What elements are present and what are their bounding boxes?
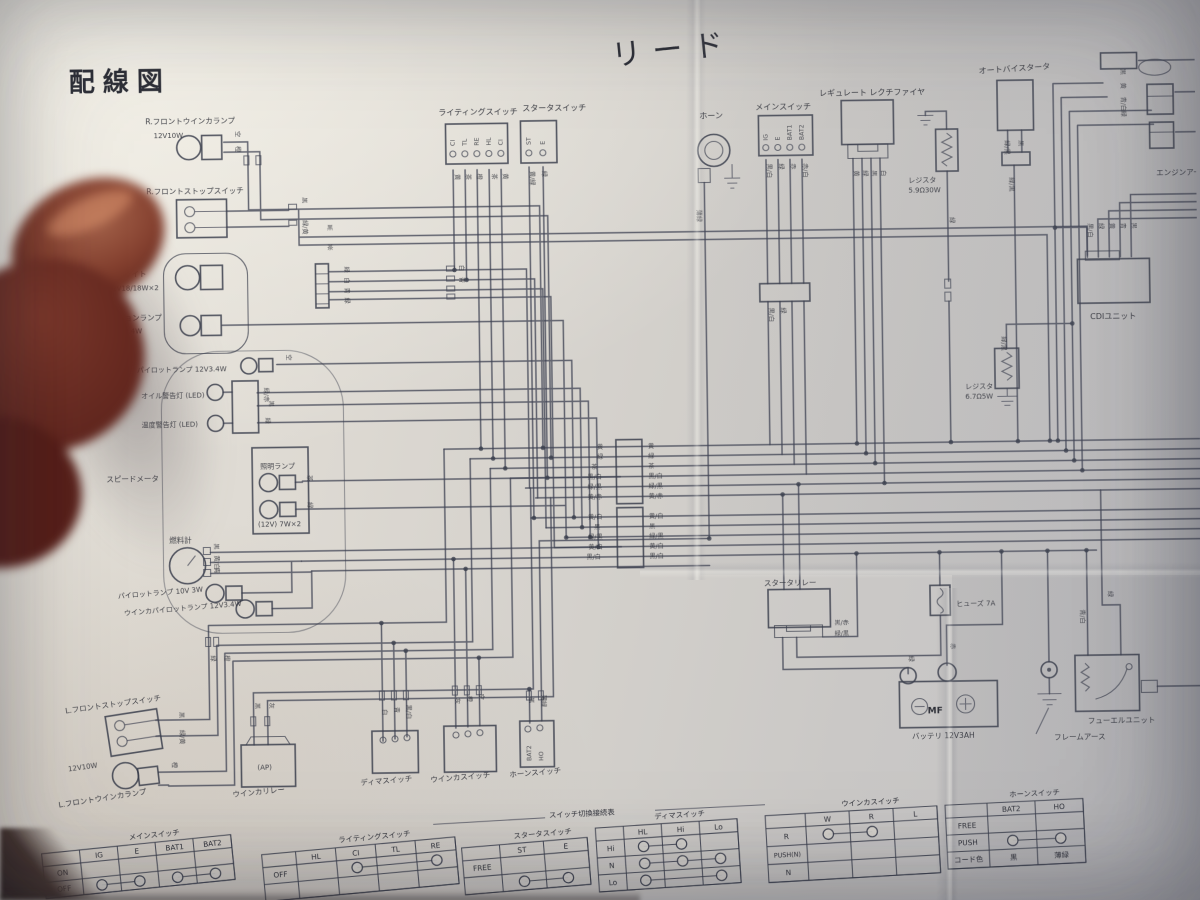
label-battery: バッテリ 12V3AH bbox=[912, 731, 975, 741]
label-winker-relay-ap: (AP) bbox=[257, 764, 272, 772]
svg-text:黒: 黒 bbox=[649, 523, 655, 530]
label-starter-switch: スタータスイッチ bbox=[522, 103, 586, 113]
svg-text:灰: 灰 bbox=[453, 698, 461, 704]
svg-text:CI: CI bbox=[352, 848, 360, 858]
label-fuse: ヒューズ 7A bbox=[956, 598, 995, 608]
label-starter-relay: スタータリレー bbox=[764, 578, 817, 588]
model-title: リード bbox=[610, 26, 736, 73]
svg-text:黄: 黄 bbox=[1108, 223, 1116, 229]
svg-text:青: 青 bbox=[213, 567, 221, 573]
r-front-winker-lamp bbox=[177, 135, 222, 160]
svg-text:緑: 緑 bbox=[779, 307, 787, 313]
svg-text:茶: 茶 bbox=[327, 244, 333, 252]
svg-text:PUSH: PUSH bbox=[958, 838, 978, 848]
battery-component bbox=[899, 662, 998, 727]
svg-text:R: R bbox=[869, 812, 875, 821]
svg-text:黒: 黒 bbox=[327, 225, 333, 232]
wires-right-top bbox=[765, 60, 1200, 485]
svg-text:黄/白: 黄/白 bbox=[649, 542, 664, 550]
svg-text:青/白: 青/白 bbox=[1119, 97, 1127, 112]
svg-text:茶: 茶 bbox=[464, 174, 472, 180]
svg-text:ホーンスイッチ: ホーンスイッチ bbox=[1009, 788, 1060, 799]
svg-text:緑/黒: 緑/黒 bbox=[1007, 177, 1015, 192]
tables-header-text: スイッチ切換接続表 bbox=[549, 808, 616, 820]
svg-text:緑: 緑 bbox=[306, 502, 314, 508]
svg-text:黄: 黄 bbox=[597, 443, 603, 451]
svg-text:N: N bbox=[785, 868, 791, 877]
label-r-front-winker: R.フロントウインカランプ bbox=[145, 116, 235, 126]
svg-text:青: 青 bbox=[1119, 223, 1127, 229]
svg-text:赤/白: 赤/白 bbox=[801, 163, 809, 178]
label-l-front-winker: L.フロントウインカランプ bbox=[58, 787, 148, 810]
svg-text:茶: 茶 bbox=[305, 475, 313, 481]
svg-text:IG: IG bbox=[95, 850, 104, 860]
svg-text:BAT2: BAT2 bbox=[203, 838, 222, 849]
fuse-component bbox=[930, 585, 950, 615]
svg-text:空: 空 bbox=[234, 131, 242, 137]
svg-text:緑: 緑 bbox=[777, 163, 785, 169]
svg-text:E: E bbox=[540, 141, 547, 145]
svg-text:HL: HL bbox=[311, 852, 322, 862]
svg-text:黄: 黄 bbox=[648, 442, 654, 450]
svg-text:緑: 緑 bbox=[861, 170, 869, 176]
svg-text:黄/赤: 黄/赤 bbox=[588, 493, 603, 501]
svg-text:HL: HL bbox=[638, 827, 649, 837]
svg-text:赤: 赤 bbox=[789, 163, 796, 169]
svg-text:BAT2: BAT2 bbox=[798, 124, 805, 140]
svg-text:緑: 緑 bbox=[948, 217, 956, 223]
tables-header: スイッチ切換接続表 bbox=[433, 805, 765, 825]
svg-text:RE: RE bbox=[474, 137, 481, 145]
svg-text:薄緑: 薄緑 bbox=[695, 210, 703, 222]
svg-text:黄: 黄 bbox=[501, 173, 509, 179]
svg-text:ST: ST bbox=[517, 845, 527, 855]
svg-text:緑/黒: 緑/黒 bbox=[588, 533, 603, 541]
label-fuel-unit: フューエルユニット bbox=[1088, 715, 1156, 725]
svg-text:緑/黒: 緑/黒 bbox=[999, 336, 1007, 351]
svg-text:W: W bbox=[824, 814, 832, 823]
label-r-front-winker-spec: 12V10W bbox=[154, 132, 184, 140]
svg-text:茶: 茶 bbox=[591, 463, 597, 471]
svg-text:OFF: OFF bbox=[273, 869, 288, 879]
svg-text:OFF: OFF bbox=[57, 884, 72, 894]
pilot-lamp-bulb bbox=[241, 358, 257, 374]
svg-text:黒: 黒 bbox=[1010, 853, 1018, 862]
svg-text:コード色: コード色 bbox=[954, 854, 984, 864]
svg-text:Hi: Hi bbox=[607, 844, 615, 853]
svg-text:黄/白: 黄/白 bbox=[588, 513, 603, 521]
svg-text:E: E bbox=[775, 136, 782, 140]
svg-text:黒: 黒 bbox=[1130, 222, 1137, 228]
svg-text:灰: 灰 bbox=[267, 703, 275, 709]
svg-text:E: E bbox=[563, 842, 569, 851]
svg-text:HL: HL bbox=[486, 137, 493, 146]
label-battery-mf: MF bbox=[928, 706, 943, 716]
svg-text:緑: 緑 bbox=[1106, 591, 1114, 597]
label-main-switch: メインスイッチ bbox=[755, 102, 811, 112]
horn-switch-box bbox=[520, 721, 555, 767]
svg-text:薄緑: 薄緑 bbox=[539, 695, 547, 707]
cdi-unit-box bbox=[1077, 250, 1150, 303]
svg-text:薄緑: 薄緑 bbox=[1054, 850, 1070, 860]
svg-text:メインスイッチ: メインスイッチ bbox=[128, 828, 180, 842]
svg-text:茶: 茶 bbox=[490, 173, 498, 179]
svg-text:青/白: 青/白 bbox=[1078, 609, 1086, 624]
svg-text:白: 白 bbox=[343, 277, 351, 283]
pilot-lamp-a bbox=[206, 584, 224, 602]
svg-text:緑: 緑 bbox=[209, 655, 217, 661]
svg-text:青: 青 bbox=[458, 277, 466, 283]
svg-text:緑: 緑 bbox=[648, 452, 654, 460]
winker-switch-box bbox=[444, 725, 497, 772]
regulator-rectifier-box bbox=[841, 100, 894, 159]
svg-text:黒: 黒 bbox=[267, 401, 274, 407]
winker-relay-box bbox=[241, 736, 296, 787]
resistor-2 bbox=[995, 348, 1020, 405]
svg-text:黄/赤: 黄/赤 bbox=[649, 492, 664, 500]
svg-text:橙: 橙 bbox=[465, 696, 473, 703]
svg-text:緑/黒: 緑/黒 bbox=[1003, 140, 1011, 155]
svg-text:BAT2: BAT2 bbox=[1002, 804, 1021, 814]
svg-text:黒: 黒 bbox=[527, 697, 534, 703]
finger bbox=[0, 176, 209, 581]
svg-text:黒/白: 黒/白 bbox=[405, 705, 413, 720]
wires-bottom-left bbox=[148, 183, 712, 787]
horn-component bbox=[698, 134, 741, 189]
svg-text:緑: 緑 bbox=[1097, 223, 1105, 229]
svg-text:緑: 緑 bbox=[343, 297, 351, 303]
fuel-unit-box bbox=[1075, 654, 1158, 711]
svg-text:橙: 橙 bbox=[234, 146, 242, 153]
svg-text:空: 空 bbox=[477, 694, 485, 700]
svg-text:白: 白 bbox=[879, 170, 887, 176]
svg-text:青: 青 bbox=[343, 287, 351, 293]
label-lamp-a: パイロットランプ 10V 3W bbox=[118, 586, 204, 601]
svg-text:黒: 黒 bbox=[253, 703, 260, 709]
label-frame-earth: フレームアース bbox=[1054, 732, 1106, 742]
svg-text:緑: 緑 bbox=[264, 418, 272, 424]
svg-text:ON: ON bbox=[57, 868, 69, 878]
svg-text:橙: 橙 bbox=[223, 655, 231, 662]
svg-text:黒/赤: 黒/赤 bbox=[834, 620, 849, 627]
svg-text:緑/黒: 緑/黒 bbox=[587, 483, 602, 491]
svg-text:茶: 茶 bbox=[648, 462, 654, 470]
wires-top-switch-drops bbox=[453, 167, 548, 519]
svg-text:E: E bbox=[134, 846, 140, 855]
svg-text:RE: RE bbox=[430, 841, 441, 851]
label-regulator: レギュレート レクチファイヤ bbox=[819, 87, 925, 97]
l-front-stop-switch bbox=[105, 709, 163, 756]
svg-text:緑/黒: 緑/黒 bbox=[835, 630, 850, 638]
svg-text:橙: 橙 bbox=[475, 174, 483, 181]
svg-text:R: R bbox=[784, 832, 790, 841]
svg-text:CI: CI bbox=[498, 139, 505, 145]
starter-relay-box bbox=[768, 589, 831, 638]
svg-text:白: 白 bbox=[457, 265, 465, 271]
svg-text:黒/白: 黒/白 bbox=[649, 552, 664, 560]
label-cdi: CDIユニット bbox=[1090, 311, 1136, 321]
label-auto-bystarter: オートバイスタータ bbox=[978, 62, 1050, 76]
svg-text:N: N bbox=[609, 861, 615, 870]
svg-text:HO: HO bbox=[1053, 802, 1065, 812]
l-front-winker-lamp bbox=[112, 762, 159, 789]
svg-text:赤: 赤 bbox=[949, 643, 956, 649]
label-resistor2-spec: 6.7Ω5W bbox=[965, 393, 993, 401]
svg-text:黒: 黒 bbox=[870, 170, 877, 176]
resistor-1 bbox=[917, 115, 958, 172]
svg-text:PUSH(N): PUSH(N) bbox=[774, 850, 802, 860]
label-horn-switch: ホーンスイッチ bbox=[509, 766, 562, 779]
svg-text:黄/白: 黄/白 bbox=[649, 512, 664, 520]
svg-text:FREE: FREE bbox=[473, 863, 493, 874]
wires-main-bus bbox=[300, 432, 1200, 573]
svg-text:BAT1: BAT1 bbox=[786, 124, 793, 140]
label-illumination: 照明ランプ bbox=[260, 462, 295, 470]
svg-text:黒: 黒 bbox=[1119, 69, 1126, 75]
svg-text:黒/白: 黒/白 bbox=[1086, 223, 1094, 238]
svg-text:緑/黄: 緑/黄 bbox=[178, 730, 186, 745]
wire-color-labels: 空橙黒緑/黄緑白青緑白青黒茶空緑/赤黒緑茶緑黒黄/白青黄茶橙茶黄黄/緑緑薄緑黒/… bbox=[161, 68, 1144, 769]
main-switch-connector bbox=[760, 283, 810, 302]
svg-text:黒: 黒 bbox=[178, 712, 185, 718]
svg-text:橙: 橙 bbox=[170, 762, 178, 769]
svg-text:Lo: Lo bbox=[608, 878, 618, 888]
label-l-front-winker-spec: 12V10W bbox=[68, 761, 98, 773]
svg-text:青: 青 bbox=[393, 707, 401, 713]
svg-text:緑: 緑 bbox=[342, 266, 350, 272]
svg-text:黄: 黄 bbox=[852, 170, 860, 176]
svg-text:黒: 黒 bbox=[1017, 140, 1024, 146]
top-right-components bbox=[1101, 52, 1174, 149]
svg-text:緑/黒: 緑/黒 bbox=[649, 532, 664, 540]
label-winker-switch: ウインカスイッチ bbox=[430, 770, 491, 784]
svg-text:黒: 黒 bbox=[300, 197, 307, 203]
svg-text:緑: 緑 bbox=[597, 453, 603, 461]
label-resistor1-spec: 5.9Ω30W bbox=[908, 186, 940, 194]
label-resistor1: レジスタ bbox=[908, 175, 936, 184]
svg-text:IG: IG bbox=[763, 134, 770, 141]
svg-text:TL: TL bbox=[390, 844, 401, 854]
svg-text:黒/白: 黒/白 bbox=[767, 308, 775, 323]
svg-text:黄/白: 黄/白 bbox=[588, 543, 603, 551]
label-engine-earth: エンジンアース bbox=[1156, 167, 1200, 177]
svg-text:緑: 緑 bbox=[540, 171, 548, 177]
label-dimmer-switch: ディマスイッチ bbox=[360, 773, 413, 787]
label-winker-relay: ウインカリレー bbox=[232, 785, 285, 799]
svg-text:黄/緑: 黄/緑 bbox=[528, 171, 536, 186]
svg-text:黒: 黒 bbox=[594, 524, 600, 531]
svg-text:黒/白: 黒/白 bbox=[765, 164, 773, 179]
svg-text:白: 白 bbox=[381, 709, 389, 715]
svg-text:FREE: FREE bbox=[958, 821, 977, 831]
label-lamp-b: ウインカパイロットランプ 12V3.4W bbox=[124, 600, 242, 618]
svg-text:ウインカスイッチ: ウインカスイッチ bbox=[841, 796, 900, 808]
label-resistor2: レジスタ bbox=[965, 382, 993, 391]
label-lighting-switch: ライティングスイッチ bbox=[438, 106, 517, 117]
svg-text:ディマスイッチ: ディマスイッチ bbox=[654, 809, 705, 821]
svg-text:黒/白: 黒/白 bbox=[586, 553, 601, 561]
label-illumination-spec: (12V) 7W×2 bbox=[258, 520, 301, 529]
svg-text:黒/白: 黒/白 bbox=[648, 472, 663, 480]
label-horn: ホーン bbox=[699, 111, 723, 120]
auto-bystarter-box bbox=[997, 80, 1034, 165]
page-title: 配線図 bbox=[69, 66, 171, 98]
svg-text:Lo: Lo bbox=[714, 822, 724, 832]
svg-text:BAT2: BAT2 bbox=[526, 745, 533, 761]
bus-connector-a bbox=[616, 439, 643, 503]
svg-text:BAT1: BAT1 bbox=[165, 842, 184, 853]
svg-text:緑: 緑 bbox=[907, 656, 915, 662]
svg-text:黒/白: 黒/白 bbox=[587, 473, 602, 481]
svg-text:緑/黒: 緑/黒 bbox=[648, 482, 663, 490]
svg-text:空: 空 bbox=[285, 354, 293, 360]
svg-text:ST: ST bbox=[526, 137, 533, 145]
svg-text:CI: CI bbox=[450, 140, 457, 146]
svg-text:HO: HO bbox=[538, 751, 545, 761]
label-l-front-stop: L.フロントストップスイッチ bbox=[65, 693, 162, 715]
svg-text:TL: TL bbox=[462, 138, 469, 147]
svg-text:黄: 黄 bbox=[1119, 83, 1127, 89]
svg-text:Hi: Hi bbox=[677, 825, 685, 834]
svg-text:黄: 黄 bbox=[453, 174, 461, 180]
photo-of-wiring-diagram: 配線図 リード bbox=[0, 0, 1200, 900]
wires-bottom-right bbox=[780, 479, 1200, 738]
switch-tables: メインスイッチIGEBAT1BAT2ONOFFライティングスイッチHLCITLR… bbox=[40, 786, 1087, 900]
svg-text:スタータスイッチ: スタータスイッチ bbox=[513, 827, 572, 841]
svg-text:黒: 黒 bbox=[212, 543, 219, 549]
svg-text:緑: 緑 bbox=[1119, 111, 1127, 117]
svg-text:L: L bbox=[913, 809, 919, 818]
svg-text:緑/黄: 緑/黄 bbox=[301, 220, 309, 235]
